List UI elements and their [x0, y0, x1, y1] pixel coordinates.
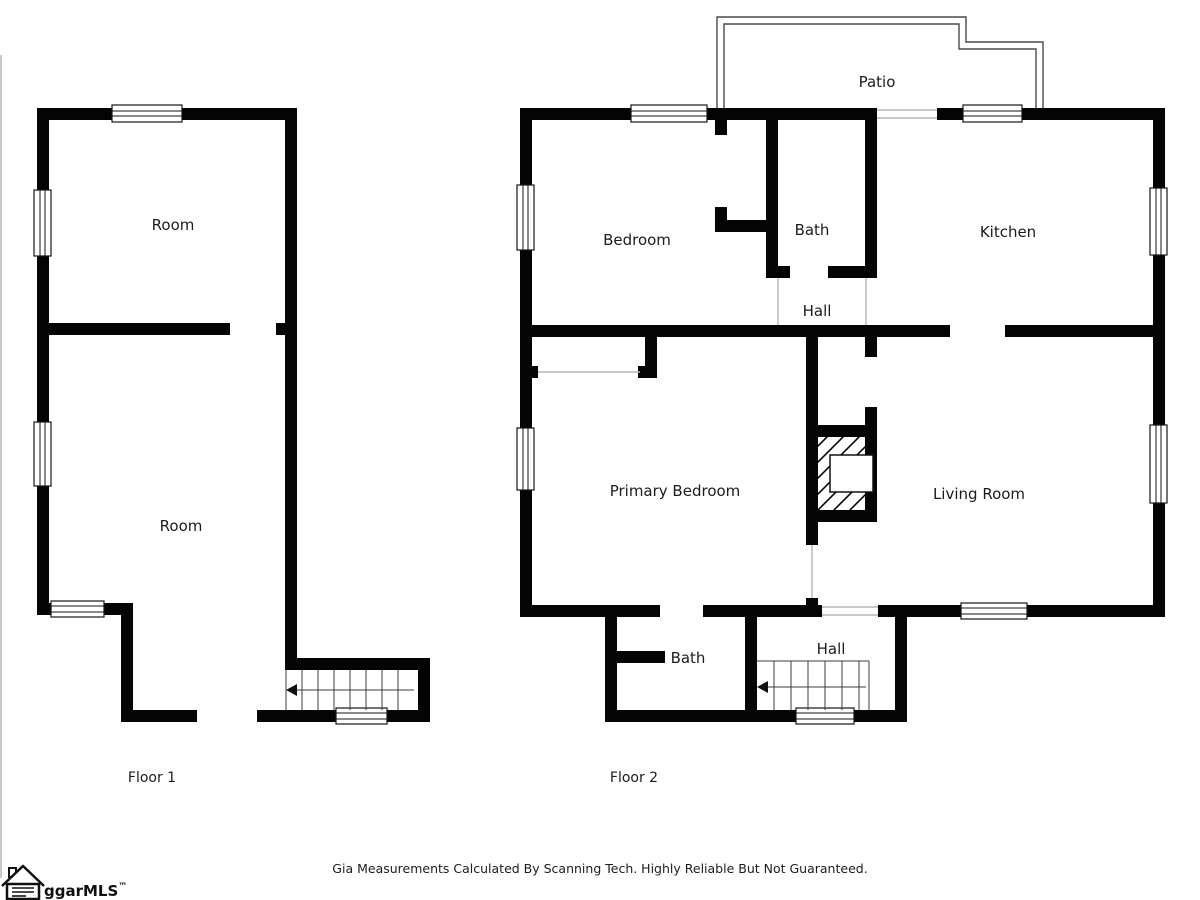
floor1-walls	[37, 108, 430, 722]
room-label: Primary Bedroom	[610, 482, 741, 500]
floor1-caption: Floor 1	[128, 770, 176, 786]
floor2-staircase	[757, 661, 869, 710]
window	[1150, 188, 1167, 255]
floorplan-image: Room Room	[0, 0, 1200, 900]
room-label: Patio	[859, 73, 896, 91]
footer-disclaimer: Gia Measurements Calculated By Scanning …	[332, 861, 867, 876]
floor1-windows	[34, 105, 387, 724]
window	[51, 601, 104, 617]
window	[796, 708, 854, 724]
window	[336, 708, 387, 724]
window	[517, 185, 534, 250]
room-label: Bath	[795, 221, 830, 239]
room-label: Bath	[671, 649, 706, 667]
window	[34, 190, 51, 256]
window	[112, 105, 182, 122]
room-label: Hall	[803, 302, 832, 320]
floor1-plan: Room Room	[34, 105, 430, 724]
window	[963, 105, 1022, 122]
room-label: Kitchen	[980, 223, 1036, 241]
mls-logo: ggarMLS™	[2, 866, 127, 900]
window	[631, 105, 707, 122]
logo-text: ggarMLS™	[44, 882, 127, 900]
stair-direction-arrow	[286, 684, 297, 696]
window	[961, 603, 1027, 619]
floor2-plan: Patio Bedroom Bath Kitchen Hall Primary …	[517, 17, 1167, 724]
image-edge-line	[0, 55, 2, 878]
window	[34, 422, 51, 486]
room-label: Room	[160, 517, 203, 535]
floor1-staircase	[286, 670, 414, 710]
room-label: Living Room	[933, 485, 1025, 503]
firebox	[830, 455, 873, 492]
floorplan-svg: Room Room	[0, 0, 1200, 900]
room-label: Hall	[817, 640, 846, 658]
room-label: Room	[152, 216, 195, 234]
fireplace	[818, 437, 873, 510]
window	[1150, 425, 1167, 503]
patio-outline	[717, 17, 1043, 108]
house-icon	[2, 866, 44, 899]
stair-direction-arrow	[757, 681, 768, 693]
floor2-caption: Floor 2	[610, 770, 658, 786]
room-label: Bedroom	[603, 231, 671, 249]
floor2-walls	[520, 108, 1165, 722]
window	[517, 428, 534, 490]
